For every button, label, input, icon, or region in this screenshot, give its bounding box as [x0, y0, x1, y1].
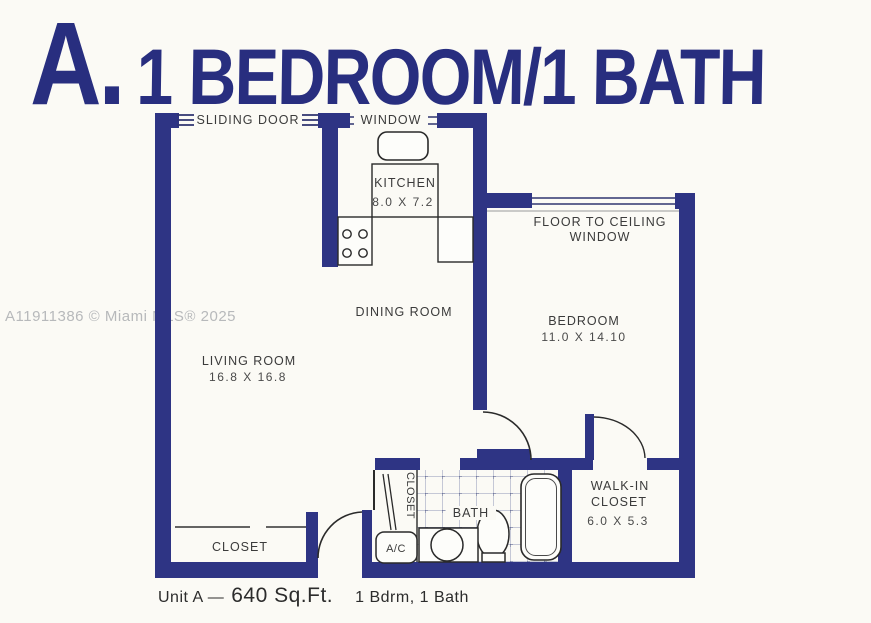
- kitchen-label: KITCHEN: [374, 176, 436, 190]
- kitchen-sink-icon: [378, 132, 428, 160]
- ac-label: A/C: [386, 543, 406, 555]
- sliding-door-label: SLIDING DOOR: [197, 113, 300, 127]
- caption-sqft: 640 Sq.Ft.: [231, 584, 333, 608]
- bifold-door-icon: [383, 474, 396, 530]
- kitchen-counter-right: [438, 217, 473, 262]
- walkin-door-arc: [594, 417, 645, 458]
- kitchen-window-label: WINDOW: [361, 113, 422, 127]
- kitchen-label-box: [372, 164, 438, 217]
- caption-unit: Unit A —: [158, 589, 224, 607]
- walkin-closet-label-1: WALK-IN: [591, 479, 650, 493]
- bath-label: BATH: [453, 506, 489, 520]
- kitchen-counter-left: [338, 217, 372, 265]
- entry-closet-label: CLOSET: [212, 540, 268, 554]
- hall-closet-label: CLOSET: [404, 472, 416, 519]
- kitchen-dims: 8.0 X 7.2: [372, 195, 434, 209]
- ftc-window-label-1: FLOOR TO CEILING: [534, 215, 667, 229]
- bedroom-dims: 11.0 X 14.10: [541, 330, 626, 344]
- vanity-sink-icon: [419, 528, 478, 562]
- caption-bed-bath: 1 Bdrm, 1 Bath: [355, 589, 469, 607]
- floor-plan-drawing: SLIDING DOOR WINDOW KITCHEN 8.0 X 7.2 FL…: [0, 0, 871, 623]
- floor-plan-page: A. 1 BEDROOM/1 BATH A11911386 © Miami ML…: [0, 0, 871, 623]
- walkin-closet-label-2: CLOSET: [591, 495, 647, 509]
- living-room-label: LIVING ROOM: [202, 354, 296, 368]
- dining-room-label: DINING ROOM: [355, 305, 452, 319]
- unit-caption: Unit A — 640 Sq.Ft. 1 Bdrm, 1 Bath: [158, 584, 469, 608]
- living-room-dims: 16.8 X 16.8: [209, 370, 287, 384]
- bedroom-label: BEDROOM: [548, 314, 620, 328]
- entry-door-arc: [318, 512, 362, 558]
- ftc-window-label-2: WINDOW: [570, 230, 631, 244]
- bathtub-icon: [521, 474, 561, 560]
- walkin-closet-dims: 6.0 X 5.3: [587, 514, 649, 528]
